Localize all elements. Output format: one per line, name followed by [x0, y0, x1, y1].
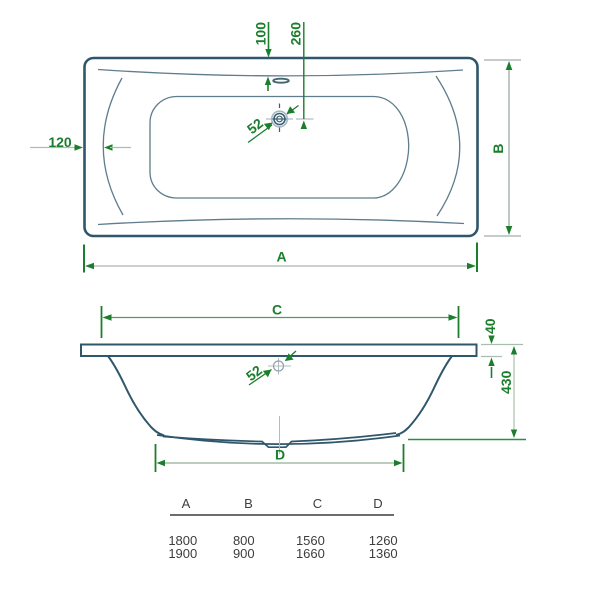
- svg-text:B: B: [244, 496, 253, 511]
- svg-text:D: D: [373, 496, 382, 511]
- svg-text:900: 900: [233, 546, 255, 561]
- svg-text:A: A: [182, 496, 191, 511]
- svg-text:1360: 1360: [369, 546, 398, 561]
- svg-text:C: C: [272, 302, 282, 318]
- svg-text:A: A: [276, 249, 286, 265]
- svg-text:40: 40: [482, 318, 498, 334]
- svg-text:430: 430: [498, 370, 514, 394]
- svg-text:C: C: [313, 496, 322, 511]
- svg-text:1900: 1900: [168, 546, 197, 561]
- svg-text:100: 100: [253, 22, 269, 46]
- svg-text:120: 120: [48, 134, 72, 150]
- svg-text:D: D: [275, 447, 285, 463]
- svg-text:260: 260: [288, 22, 304, 46]
- svg-text:1660: 1660: [296, 546, 325, 561]
- svg-text:B: B: [490, 143, 506, 153]
